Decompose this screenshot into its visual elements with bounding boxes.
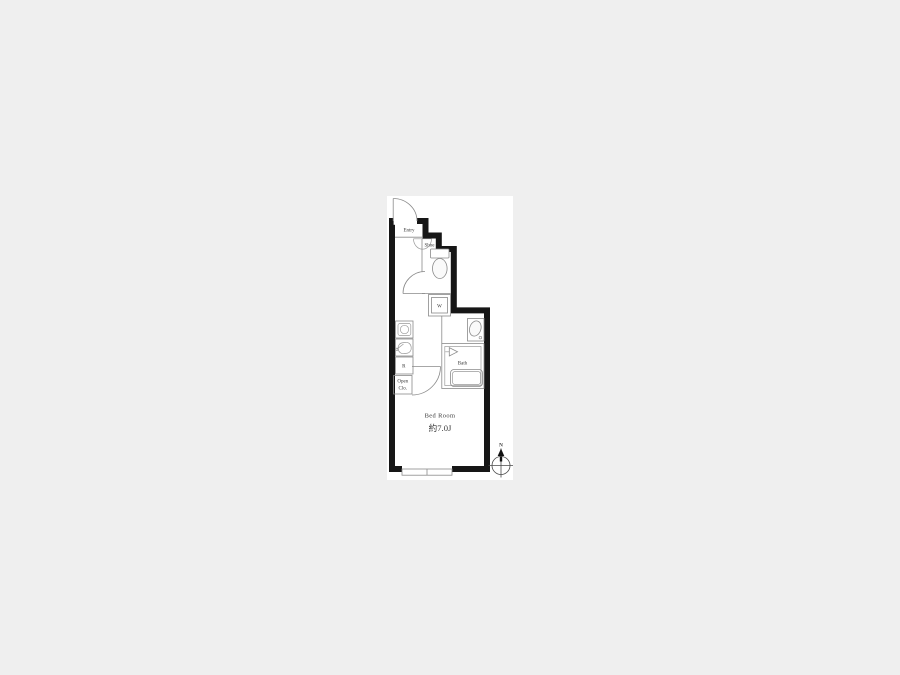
- sink-basin: [397, 342, 411, 355]
- toilet-bowl: [433, 259, 448, 279]
- shower-icon: [445, 348, 457, 356]
- floorplan-drawing: Entry Shoe: [387, 196, 513, 480]
- floorplan-canvas: Entry Shoe: [387, 196, 513, 480]
- washing-machine: W: [429, 295, 451, 317]
- bathtub-inner: [453, 372, 481, 385]
- bathtub-outer: [451, 370, 483, 387]
- shower-head: [449, 348, 457, 356]
- window: [402, 469, 452, 475]
- bathtub-icon: [451, 370, 483, 387]
- open-closet-label-line1: Open: [397, 379, 408, 384]
- stove-burner: [400, 325, 408, 333]
- refrigerator-space: R: [396, 357, 414, 374]
- bathroom: Bath: [442, 344, 484, 389]
- stove-icon: [396, 321, 414, 338]
- toilet-door-arc: [403, 272, 425, 294]
- washbasin-tap: [479, 336, 482, 339]
- washbasin-bowl: [468, 319, 483, 337]
- bedroom-size-label: 約7.0J: [429, 422, 452, 433]
- compass: N: [489, 443, 514, 478]
- toilet-tank: [431, 249, 450, 258]
- bedroom-door-arc: [412, 367, 441, 396]
- washer-label: W: [437, 305, 442, 310]
- compass-arrow-icon: [498, 449, 505, 462]
- bedroom-door: [412, 367, 441, 396]
- sink-icon: [396, 339, 414, 356]
- entry-label: Entry: [403, 229, 415, 234]
- toilet-door: [403, 272, 425, 294]
- compass-arrow-head: [498, 449, 505, 457]
- north-label: N: [499, 443, 503, 449]
- open-closet-label-line2: Clo.: [399, 386, 407, 391]
- bath-label: Bath: [458, 362, 468, 367]
- page-background: Entry Shoe: [0, 0, 900, 675]
- bedroom-label: Bed Room: [425, 413, 456, 420]
- refrigerator-label: R: [402, 364, 406, 369]
- open-closet: Open Clo.: [394, 376, 413, 395]
- entry-door-opening: [394, 217, 417, 224]
- shoe-label: Shoe: [425, 243, 436, 248]
- toilet-icon: [431, 249, 450, 279]
- washbasin-icon: [468, 319, 485, 342]
- kitchen: R Open Clo.: [394, 321, 414, 394]
